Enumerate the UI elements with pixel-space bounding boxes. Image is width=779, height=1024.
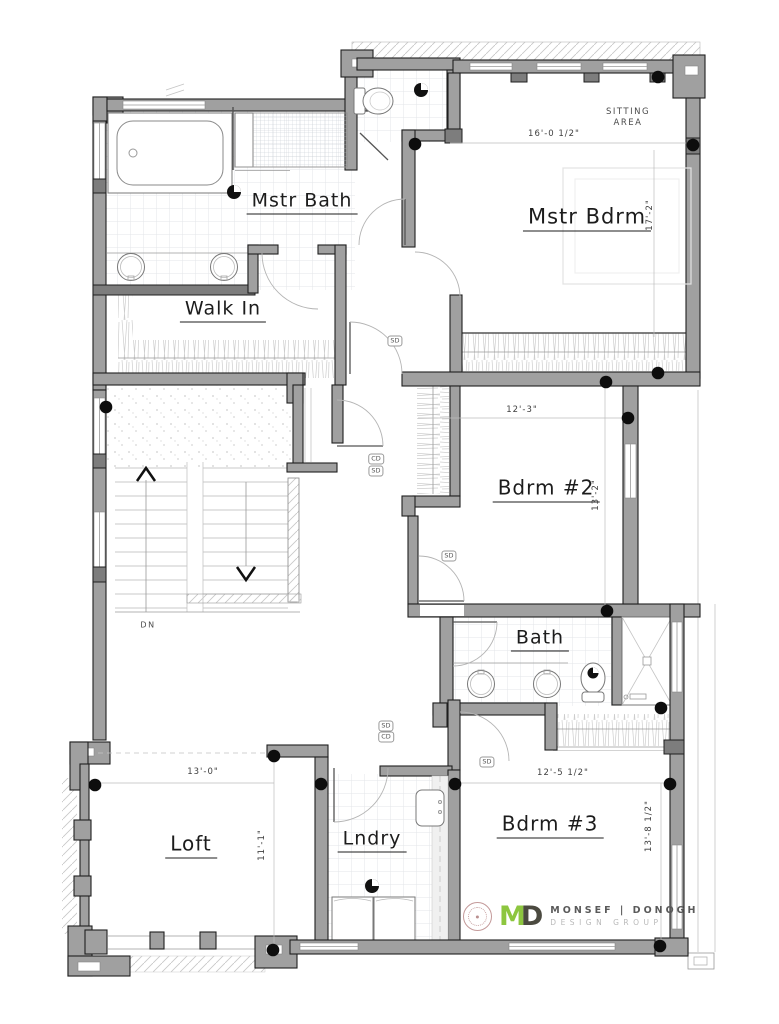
dryer (374, 897, 415, 943)
detector-sd-stair: SD (368, 466, 383, 477)
room-label-walk-in: Walk In (180, 298, 266, 323)
detector-sd-bdrm2: SD (441, 551, 456, 562)
room-label-bath: Bath (511, 627, 569, 652)
room-label-mstr-bdrm: Mstr Bdrm (523, 205, 651, 232)
logo: ● MD MONSEF | DONOGH DESIGN GROUP (463, 897, 698, 935)
room-label-loft: Loft (165, 832, 217, 859)
dim-bdrm2-depth: 13'-2" (591, 479, 601, 511)
laundry-sink (416, 790, 444, 826)
detector-sd-lower-hall: SD (378, 721, 393, 732)
dim-mstr-bdrm-depth: 17'-2" (645, 199, 655, 231)
detector-cd-stair: CD (368, 454, 384, 465)
bath-sink-right (534, 671, 561, 698)
detector-sd-bdrm3: SD (479, 757, 494, 768)
architect-stamp-icon: ● (463, 902, 492, 931)
stairs-dn-label: DN (140, 621, 155, 630)
logo-letter-d: D (521, 901, 543, 932)
sitting-area-label-line1: SITTING (606, 107, 650, 117)
dim-mstr-bdrm-width: 16'-0 1/2" (528, 129, 580, 139)
room-label-bdrm2: Bdrm #2 (493, 476, 600, 503)
room-label-mstr-bath: Mstr Bath (247, 190, 358, 215)
dim-loft-depth: 11'-1" (257, 829, 267, 861)
stairs-up-arrow (137, 468, 155, 481)
sitting-area-label-line2: AREA (614, 118, 643, 128)
floorplan-linework (0, 0, 779, 1024)
bath-sink-left (468, 671, 495, 698)
washer (332, 897, 373, 943)
staircase (115, 462, 301, 612)
logo-text: MONSEF | DONOGH DESIGN GROUP (550, 905, 698, 927)
logo-monogram: MD (499, 903, 543, 930)
floor-plan-page: Mstr Bath Mstr Bdrm Walk In Bdrm #2 Bath… (0, 0, 779, 1024)
room-label-bdrm3: Bdrm #3 (497, 812, 604, 839)
dim-bdrm3-depth: 13'-8 1/2" (644, 800, 654, 852)
dim-bdrm3-width: 12'-5 1/2" (537, 768, 589, 778)
mstr-shower (253, 113, 347, 167)
walls-bottom (290, 938, 688, 956)
room-label-lndry: Lndry (338, 828, 407, 853)
logo-firm-name: MONSEF | DONOGH (550, 905, 698, 916)
dim-bdrm2-width: 12'-3" (506, 405, 538, 415)
vanity-sink-left (118, 254, 145, 281)
detector-cd-lower-hall: CD (378, 732, 394, 743)
logo-tagline: DESIGN GROUP (550, 918, 698, 927)
dim-loft-width: 13'-0" (187, 767, 219, 777)
vanity-sink-right (211, 254, 238, 281)
detector-sd-upper-hall: SD (387, 336, 402, 347)
shower-bench (235, 113, 253, 167)
stairs-down-arrow (237, 567, 255, 580)
